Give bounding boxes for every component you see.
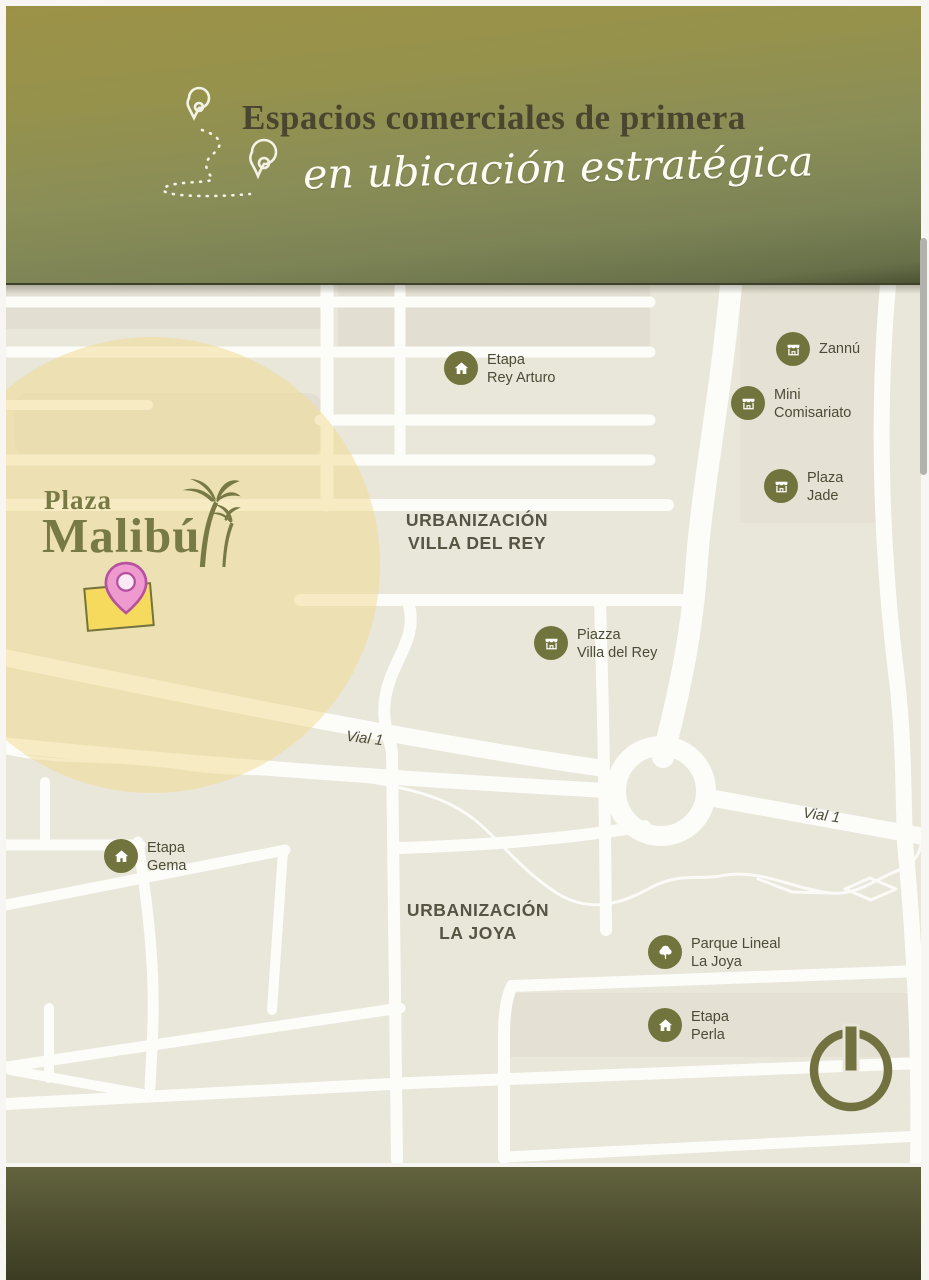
frame-top	[0, 0, 929, 6]
pink-pin-icon	[103, 561, 149, 615]
location-map: URBANIZACIÓN VILLA DEL REY URBANIZACIÓN …	[6, 285, 921, 1163]
header-subtitle: en ubicación estratégica	[302, 137, 813, 198]
frame-left	[0, 0, 6, 1280]
poster: Espacios comerciales de primera en ubica…	[0, 0, 929, 1280]
header-title: Espacios comerciales de primera	[242, 98, 746, 138]
poi-label-etapa-rey-arturo: EtapaRey Arturo	[487, 351, 556, 387]
tree-icon	[648, 935, 682, 969]
poi-label-piazza-villa-del-rey: PiazzaVilla del Rey	[577, 626, 657, 662]
frame-map-footer-gap	[6, 1163, 921, 1167]
scrollbar-thumb[interactable]	[920, 238, 927, 475]
store-icon	[764, 469, 798, 503]
poi-label-etapa-perla: EtapaPerla	[691, 1008, 729, 1044]
compass-icon	[803, 1021, 899, 1117]
poi-label-zannu: Zannú	[819, 340, 860, 358]
area-label-la-joya: URBANIZACIÓN LA JOYA	[407, 899, 549, 945]
store-icon	[731, 386, 765, 420]
house-icon	[444, 351, 478, 385]
poi-label-plaza-jade: PlazaJade	[807, 469, 843, 505]
poi-label-parque-lineal-la-joya: Parque LinealLa Joya	[691, 935, 781, 971]
store-icon	[534, 626, 568, 660]
poi-label-mini-comisariato: MiniComisariato	[774, 386, 851, 422]
house-icon	[648, 1008, 682, 1042]
header-banner: Espacios comerciales de primera en ubica…	[6, 6, 921, 285]
palm-trees-icon	[169, 477, 241, 569]
area-label-villa-del-rey: URBANIZACIÓN VILLA DEL REY	[406, 509, 548, 555]
frame-right	[921, 0, 929, 1280]
store-icon	[776, 332, 810, 366]
poi-label-etapa-gema: EtapaGema	[147, 839, 187, 875]
house-icon	[104, 839, 138, 873]
map-top-shadow	[6, 285, 921, 294]
footer-band	[6, 1167, 923, 1280]
